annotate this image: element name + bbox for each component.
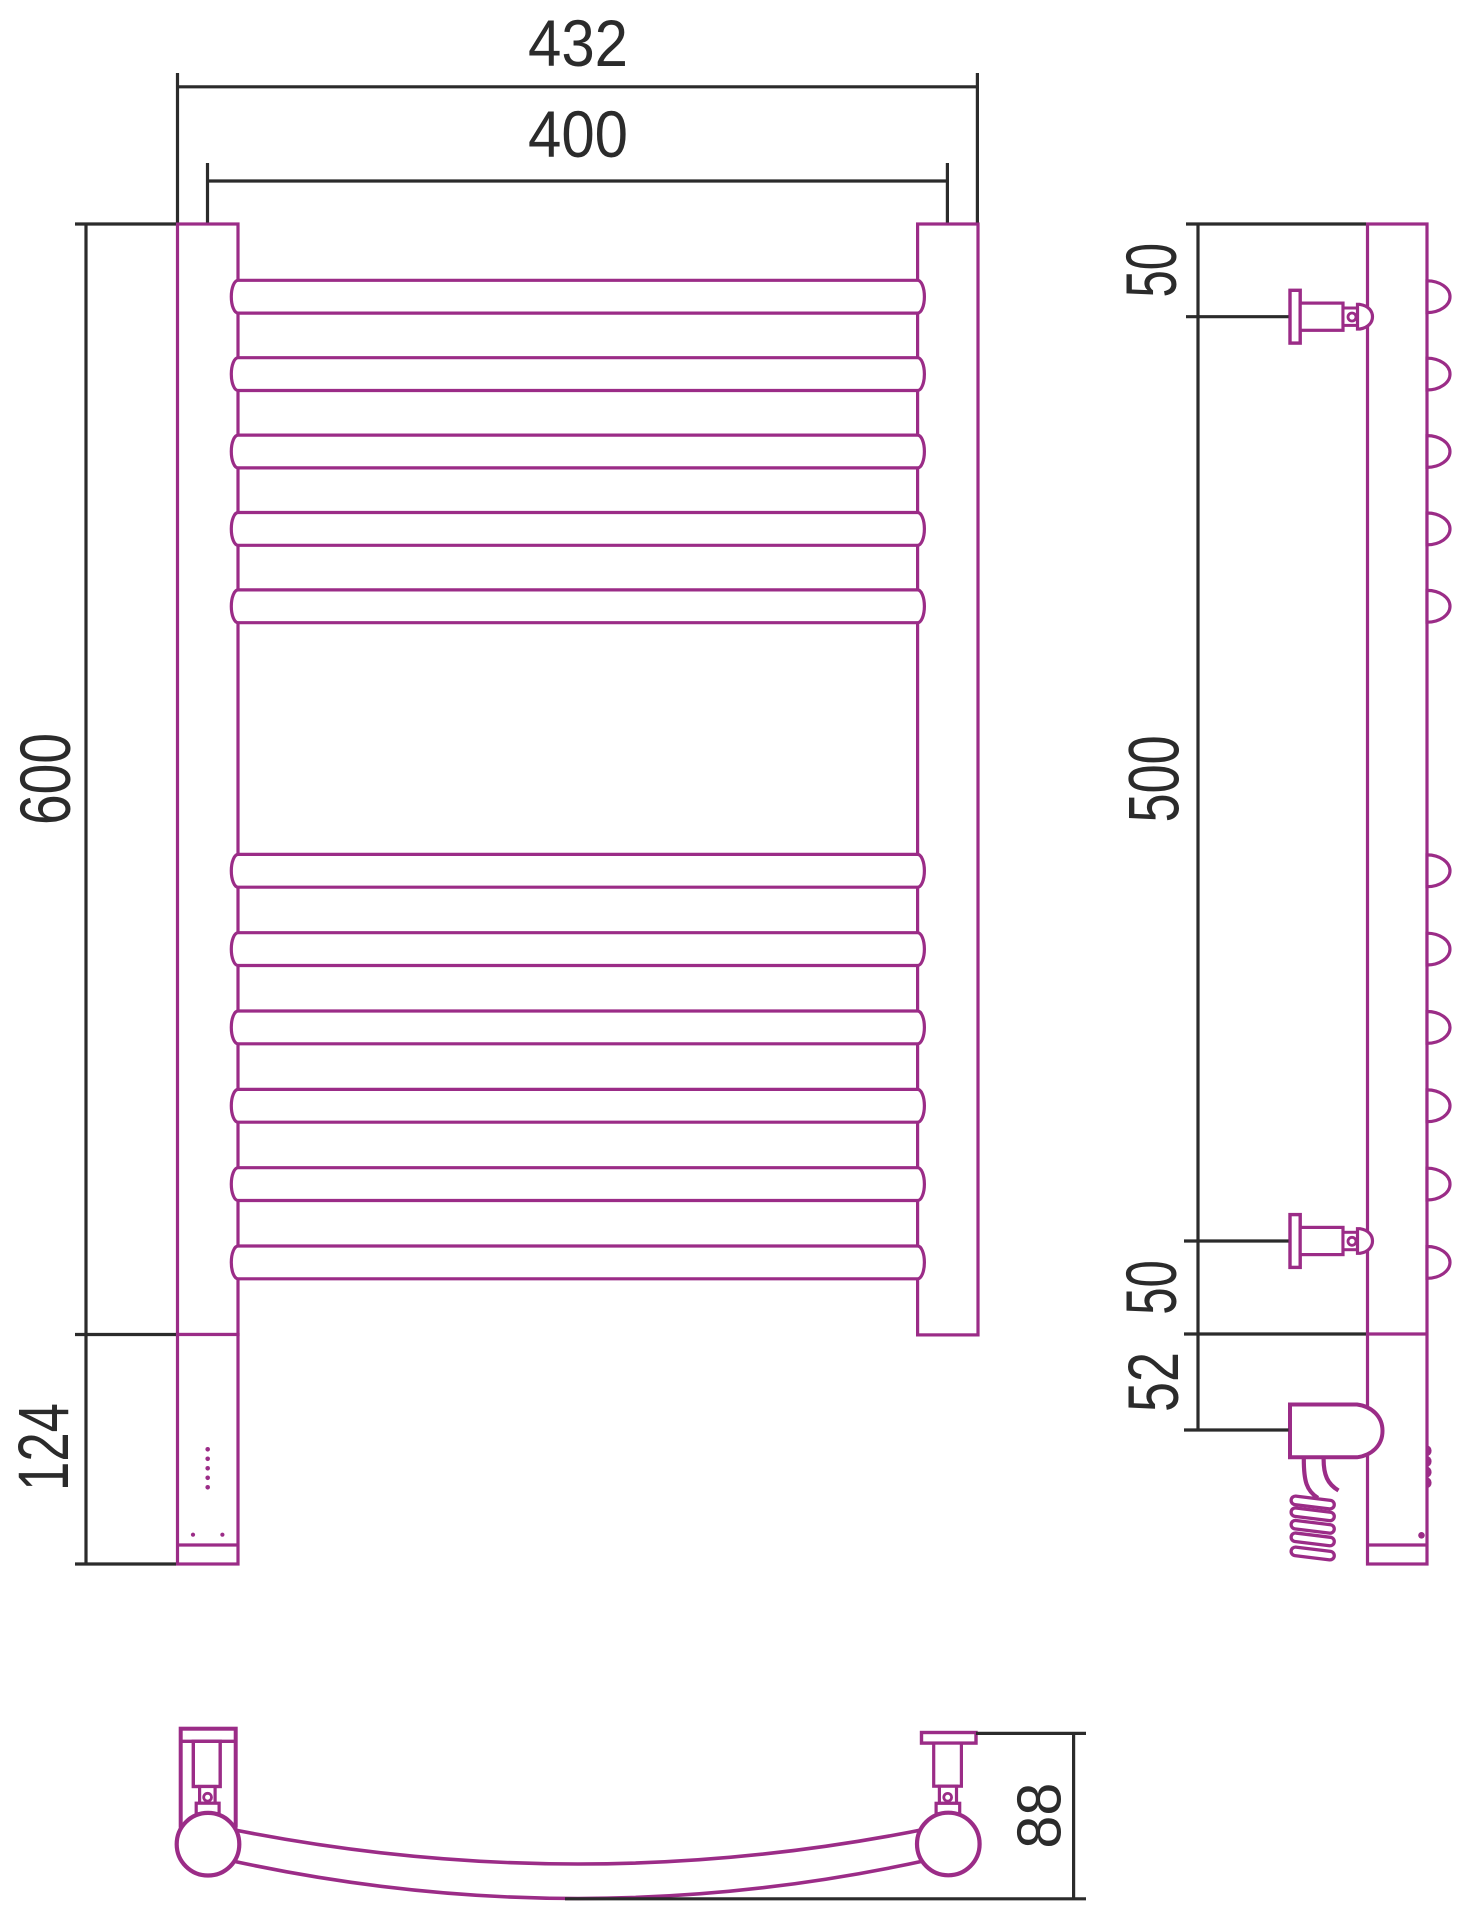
svg-text:400: 400: [528, 97, 628, 171]
svg-text:500: 500: [1116, 735, 1195, 822]
svg-text:600: 600: [7, 733, 86, 825]
svg-text:50: 50: [1113, 243, 1192, 298]
svg-text:50: 50: [1113, 1260, 1192, 1315]
svg-text:88: 88: [1006, 1783, 1075, 1849]
svg-text:52: 52: [1115, 1352, 1194, 1412]
svg-text:124: 124: [5, 1403, 84, 1491]
svg-text:432: 432: [528, 6, 628, 80]
